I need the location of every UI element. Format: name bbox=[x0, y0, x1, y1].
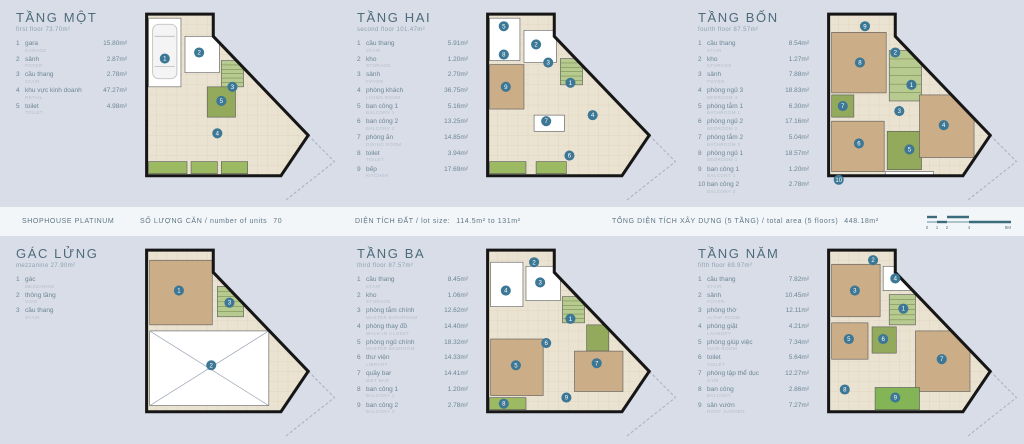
item-name: cầu thang bbox=[707, 40, 789, 47]
item-number: 3 bbox=[698, 71, 707, 78]
floor-title: TẦNG NĂM bbox=[698, 246, 809, 261]
item-number: 1 bbox=[357, 276, 366, 283]
item-name: sảnh bbox=[707, 292, 785, 299]
floor-title: TẦNG MỘT bbox=[16, 10, 127, 25]
room-marker: 5 bbox=[499, 21, 509, 31]
legend-item: 9sân vườn7.27m²ROOF GARDEN bbox=[698, 402, 809, 415]
item-name: kho bbox=[366, 292, 448, 299]
item-area: 14.33m² bbox=[444, 354, 468, 361]
room-marker: 9 bbox=[860, 21, 870, 31]
item-number: 1 bbox=[16, 40, 25, 47]
item-sublabel: MASTER BATHROOM bbox=[366, 315, 468, 320]
item-sublabel: BEDROOM 2 bbox=[707, 126, 809, 131]
room-marker: 2 bbox=[531, 39, 541, 49]
item-number: 2 bbox=[16, 292, 25, 299]
item-area: 18.32m² bbox=[444, 339, 468, 346]
item-name: phòng ăn bbox=[366, 134, 444, 141]
legend-item: 3cầu thang2.78m²STAIR bbox=[16, 71, 127, 84]
legend-item: 2kho1.06m²STORAGE bbox=[357, 292, 468, 305]
item-number: 2 bbox=[357, 56, 366, 63]
item-name: ban công bbox=[707, 386, 789, 393]
item-name: phòng tập thể dục bbox=[707, 370, 785, 377]
room-marker: 6 bbox=[541, 338, 551, 348]
item-area: 15.80m² bbox=[103, 40, 127, 47]
item-sublabel: BALCONY bbox=[707, 393, 809, 398]
item-number: 9 bbox=[357, 166, 366, 173]
item-name: ban công 2 bbox=[366, 402, 448, 409]
legend-item: 3cầu thangSTAIR bbox=[16, 307, 127, 320]
item-name: phòng khách bbox=[366, 87, 444, 94]
item-sublabel: RETAIL bbox=[25, 95, 127, 100]
item-area: 2.78m² bbox=[789, 181, 809, 188]
info-band: SHOPHOUSE PLATINUM SỐ LƯỢNG CĂN / number… bbox=[0, 207, 1024, 236]
item-area: 2.78m² bbox=[448, 402, 468, 409]
item-name: toilet bbox=[25, 103, 107, 110]
legend-item: 5phòng giúp việc7.34m²MAID ROOM bbox=[698, 339, 809, 352]
floor-legend: TẦNG NĂM fifth floor 69.97m² 1cầu thang7… bbox=[682, 238, 813, 443]
item-number: 2 bbox=[698, 56, 707, 63]
legend-item: 2thông tầngVOID bbox=[16, 292, 127, 305]
legend-item: 8ban công2.86m²BALCONY bbox=[698, 386, 809, 399]
floors-row-bottom: GÁC LỬNG mezzanine 27.90m² 1gácMEZZANINE… bbox=[0, 238, 1024, 443]
room-marker: 1 bbox=[898, 304, 908, 314]
room-marker: 1 bbox=[160, 54, 170, 64]
item-sublabel: GYM bbox=[707, 378, 809, 383]
legend-item: 8toilet3.94m²TOILET bbox=[357, 150, 468, 163]
legend-item: 7quầy bar14.41m²WET BAR bbox=[357, 370, 468, 383]
item-sublabel: BALCONY 2 bbox=[366, 126, 468, 131]
legend-item: 1cầu thang5.91m²STAIR bbox=[357, 40, 468, 53]
item-area: 10.45m² bbox=[785, 292, 809, 299]
item-name: sảnh bbox=[25, 56, 107, 63]
item-sublabel: STAIR bbox=[366, 284, 468, 289]
floor-plan-gac-lung: 132 bbox=[131, 238, 341, 440]
floor-cell-tang-nam: TẦNG NĂM fifth floor 69.97m² 1cầu thang7… bbox=[682, 238, 1023, 443]
room-marker: 7 bbox=[937, 354, 947, 364]
floor-title: TẦNG HAI bbox=[357, 10, 468, 25]
total-label: TỔNG DIỆN TÍCH XÂY DỰNG (5 TẦNG) / total… bbox=[612, 218, 838, 225]
legend-items: 1gara15.80m²GARAGE2sảnh2.87m²FOYER3cầu t… bbox=[16, 40, 127, 115]
room-marker: 7 bbox=[592, 358, 602, 368]
item-number: 9 bbox=[698, 402, 707, 409]
item-area: 3.94m² bbox=[448, 150, 468, 157]
item-sublabel: BALCONY 1 bbox=[366, 393, 468, 398]
item-number: 2 bbox=[16, 56, 25, 63]
item-sublabel: ROOF GARDEN bbox=[707, 409, 809, 414]
item-sublabel: BALCONY 2 bbox=[707, 189, 809, 194]
item-area: 7.82m² bbox=[789, 276, 809, 283]
scale-label: 4 bbox=[968, 225, 971, 230]
item-name: khu vực kinh doanh bbox=[25, 87, 103, 94]
legend-item: 5phòng tắm 16.30m²BATHROOM 1 bbox=[698, 103, 809, 116]
room-marker: 6 bbox=[878, 334, 888, 344]
room-marker: 4 bbox=[890, 273, 900, 283]
room-marker: 5 bbox=[904, 144, 914, 154]
scale-bar: 01248M bbox=[926, 213, 1012, 231]
room-marker: 4 bbox=[212, 128, 222, 138]
item-number: 7 bbox=[357, 370, 366, 377]
item-number: 7 bbox=[357, 134, 366, 141]
legend-items: 1cầu thang8.54m²STAIR2kho1.27m²STORAGE3s… bbox=[698, 40, 809, 194]
floor-plan-tang-ba: 234167589 bbox=[472, 238, 682, 440]
item-sublabel: TOILET bbox=[25, 110, 127, 115]
room-marker: 10 bbox=[834, 175, 844, 185]
legend-item: 5ban công 15.16m²BALCONY 1 bbox=[357, 103, 468, 116]
item-name: ban công 2 bbox=[366, 118, 444, 125]
item-sublabel: FOYER bbox=[25, 63, 127, 68]
floor-cell-tang-hai: TẦNG HAI second floor 101.47m² 1cầu than… bbox=[341, 2, 682, 207]
legend-item: 1cầu thang7.82m²STAIR bbox=[698, 276, 809, 289]
floors-row-top: TẦNG MỘT first floor 73.70m² 1gara15.80m… bbox=[0, 2, 1024, 207]
item-number: 4 bbox=[698, 87, 707, 94]
room-marker: 3 bbox=[850, 285, 860, 295]
item-name: sảnh bbox=[707, 71, 789, 78]
item-area: 7.34m² bbox=[789, 339, 809, 346]
item-sublabel: BALCONY 2 bbox=[366, 409, 468, 414]
floor-legend: GÁC LỬNG mezzanine 27.90m² 1gácMEZZANINE… bbox=[0, 238, 131, 443]
item-sublabel: STORAGE bbox=[366, 63, 468, 68]
item-name: cầu thang bbox=[366, 276, 448, 283]
item-name: bếp bbox=[366, 166, 444, 173]
item-name: gác bbox=[25, 276, 127, 283]
item-sublabel: MAID ROOM bbox=[707, 346, 809, 351]
scale-label: 0 bbox=[926, 225, 929, 230]
legend-item: 1cầu thang8.54m²STAIR bbox=[698, 40, 809, 53]
plan-room bbox=[536, 162, 566, 174]
item-number: 1 bbox=[357, 40, 366, 47]
item-name: toilet bbox=[707, 354, 789, 361]
floor-subtitle: fourth floor 87.57m² bbox=[698, 27, 809, 33]
item-number: 4 bbox=[698, 323, 707, 330]
item-sublabel: WET BAR bbox=[366, 378, 468, 383]
item-name: cầu thang bbox=[707, 276, 789, 283]
item-area: 12.27m² bbox=[785, 370, 809, 377]
room-marker: 3 bbox=[894, 106, 904, 116]
legend-item: 4phòng ngủ 318.83m²BEDROOM 3 bbox=[698, 87, 809, 100]
legend-items: 1cầu thang8.45m²STAIR2kho1.06m²STORAGE3p… bbox=[357, 276, 468, 414]
item-sublabel: STAIR bbox=[366, 48, 468, 53]
item-sublabel: BALCONY 1 bbox=[366, 110, 468, 115]
item-number: 7 bbox=[698, 370, 707, 377]
item-number: 6 bbox=[357, 118, 366, 125]
svg-text:10: 10 bbox=[835, 178, 842, 184]
room-marker: 4 bbox=[939, 120, 949, 130]
legend-item: 6phòng ngủ 217.16m²BEDROOM 2 bbox=[698, 118, 809, 131]
item-number: 5 bbox=[357, 339, 366, 346]
floor-plan-tang-bon: 92817346510 bbox=[813, 2, 1023, 204]
legend-item: 1cầu thang8.45m²STAIR bbox=[357, 276, 468, 289]
item-sublabel: TOILET bbox=[366, 157, 468, 162]
item-area: 8.54m² bbox=[789, 40, 809, 47]
item-name: cầu thang bbox=[25, 307, 127, 314]
item-area: 4.21m² bbox=[789, 323, 809, 330]
plan-room bbox=[490, 162, 526, 174]
plan-room bbox=[587, 325, 609, 351]
brand-label: SHOPHOUSE PLATINUM bbox=[22, 207, 114, 236]
item-number: 5 bbox=[357, 103, 366, 110]
item-name: ban công 1 bbox=[707, 166, 789, 173]
item-name: phòng ngủ 3 bbox=[707, 87, 785, 94]
item-sublabel: BATHROOM 1 bbox=[707, 110, 809, 115]
legend-item: 9bếp17.69m²KITCHEN bbox=[357, 166, 468, 179]
item-sublabel: STAIR bbox=[707, 284, 809, 289]
item-area: 14.85m² bbox=[444, 134, 468, 141]
room-marker: 9 bbox=[890, 393, 900, 403]
legend-items: 1gácMEZZANINE2thông tầngVOID3cầu thangST… bbox=[16, 276, 127, 320]
item-area: 13.25m² bbox=[444, 118, 468, 125]
room-marker: 1 bbox=[565, 314, 575, 324]
floor-legend: TẦNG HAI second floor 101.47m² 1cầu than… bbox=[341, 2, 472, 207]
item-sublabel: STAIR bbox=[25, 315, 127, 320]
item-area: 1.20m² bbox=[789, 166, 809, 173]
floor-subtitle: third floor 87.57m² bbox=[357, 263, 468, 269]
plan-room bbox=[887, 131, 921, 169]
item-number: 3 bbox=[16, 71, 25, 78]
item-number: 7 bbox=[698, 134, 707, 141]
legend-item: 9ban công 22.78m²BALCONY 2 bbox=[357, 402, 468, 415]
item-sublabel: TOILET bbox=[707, 362, 809, 367]
item-name: phòng tắm chính bbox=[366, 307, 444, 314]
floor-subtitle: first floor 73.70m² bbox=[16, 27, 127, 33]
legend-item: 3sảnh7.88m²FOYER bbox=[698, 71, 809, 84]
item-sublabel: GARAGE bbox=[25, 48, 127, 53]
item-number: 4 bbox=[357, 87, 366, 94]
item-number: 8 bbox=[698, 386, 707, 393]
item-name: phòng ngủ 1 bbox=[707, 150, 785, 157]
item-number: 6 bbox=[698, 118, 707, 125]
item-number: 8 bbox=[357, 386, 366, 393]
item-number: 3 bbox=[698, 307, 707, 314]
legend-item: 6thư viện14.33m²LIBRARY bbox=[357, 354, 468, 367]
room-marker: 1 bbox=[906, 80, 916, 90]
item-area: 1.06m² bbox=[448, 292, 468, 299]
item-area: 2.87m² bbox=[107, 56, 127, 63]
item-number: 1 bbox=[698, 40, 707, 47]
item-area: 8.45m² bbox=[448, 276, 468, 283]
legend-item: 5toilet4.98m²TOILET bbox=[16, 103, 127, 116]
item-number: 5 bbox=[698, 103, 707, 110]
total-value: 448.18m² bbox=[844, 218, 878, 225]
item-name: quầy bar bbox=[366, 370, 444, 377]
room-marker: 6 bbox=[564, 150, 574, 160]
room-marker: 8 bbox=[840, 384, 850, 394]
item-area: 12.62m² bbox=[444, 307, 468, 314]
item-area: 2.78m² bbox=[107, 71, 127, 78]
item-sublabel: STAIR bbox=[707, 48, 809, 53]
item-number: 8 bbox=[357, 150, 366, 157]
item-number: 9 bbox=[357, 402, 366, 409]
item-name: phòng ngủ chính bbox=[366, 339, 444, 346]
item-area: 12.11m² bbox=[786, 307, 809, 314]
floor-cell-gac-lung: GÁC LỬNG mezzanine 27.90m² 1gácMEZZANINE… bbox=[0, 238, 341, 443]
legend-item: 3phòng thờ12.11m²ALTAR ROOM bbox=[698, 307, 809, 320]
item-area: 5.04m² bbox=[789, 134, 809, 141]
plan-room bbox=[149, 162, 187, 174]
item-sublabel: ALTAR ROOM bbox=[707, 315, 809, 320]
item-sublabel: BEDROOM 1 bbox=[707, 157, 809, 162]
floor-plan-tang-mot: 12354 bbox=[131, 2, 341, 204]
legend-item: 3sảnh2.70m²FOYER bbox=[357, 71, 468, 84]
floor-legend: TẦNG BỐN fourth floor 87.57m² 1cầu thang… bbox=[682, 2, 813, 207]
legend-item: 2kho1.27m²STORAGE bbox=[698, 56, 809, 69]
legend-item: 7phòng tắm 25.04m²BATHROOM 2 bbox=[698, 134, 809, 147]
legend-item: 5phòng ngủ chính18.32m²MASTER BEDROOM bbox=[357, 339, 468, 352]
floor-cell-tang-bon: TẦNG BỐN fourth floor 87.57m² 1cầu thang… bbox=[682, 2, 1023, 207]
plan-room bbox=[191, 162, 217, 174]
item-number: 5 bbox=[698, 339, 707, 346]
floor-title: TẦNG BA bbox=[357, 246, 468, 261]
item-number: 3 bbox=[357, 307, 366, 314]
item-area: 36.75m² bbox=[444, 87, 468, 94]
item-area: 7.27m² bbox=[789, 402, 809, 409]
legend-item: 4khu vực kinh doanh47.27m²RETAIL bbox=[16, 87, 127, 100]
item-area: 1.20m² bbox=[448, 386, 468, 393]
room-marker: 2 bbox=[194, 47, 204, 57]
item-sublabel: DINING ROOM bbox=[366, 142, 468, 147]
room-marker: 1 bbox=[174, 285, 184, 295]
plan-room bbox=[574, 351, 622, 391]
item-name: cầu thang bbox=[366, 40, 448, 47]
legend-item: 8ban công 11.20m²BALCONY 1 bbox=[357, 386, 468, 399]
legend-item: 6ban công 213.25m²BALCONY 2 bbox=[357, 118, 468, 131]
item-sublabel: LIVING ROOM bbox=[366, 95, 468, 100]
item-name: sảnh bbox=[366, 71, 448, 78]
floor-subtitle: mezzanine 27.90m² bbox=[16, 263, 127, 269]
room-marker: 2 bbox=[529, 257, 539, 267]
legend-item: 7phòng ăn14.85m²DINING ROOM bbox=[357, 134, 468, 147]
room-marker: 3 bbox=[543, 58, 553, 68]
item-area: 6.30m² bbox=[789, 103, 809, 110]
item-name: ban công 1 bbox=[366, 103, 448, 110]
room-marker: 8 bbox=[499, 49, 509, 59]
item-number: 4 bbox=[357, 323, 366, 330]
room-marker: 3 bbox=[224, 298, 234, 308]
room-marker: 1 bbox=[565, 78, 575, 88]
item-sublabel: VOID bbox=[25, 299, 127, 304]
lot-size-info: DIỆN TÍCH ĐẤT / lot size: 114.5m² to 131… bbox=[355, 207, 521, 236]
legend-item: 9ban công 11.20m²BALCONY 1 bbox=[698, 166, 809, 179]
item-area: 4.98m² bbox=[107, 103, 127, 110]
room-marker: 2 bbox=[868, 255, 878, 265]
item-name: phòng tắm 2 bbox=[707, 134, 789, 141]
plan-room bbox=[221, 162, 247, 174]
item-sublabel: STAIR bbox=[25, 79, 127, 84]
item-number: 2 bbox=[698, 292, 707, 299]
legend-item: 6toilet5.64m²TOILET bbox=[698, 354, 809, 367]
item-area: 1.20m² bbox=[448, 56, 468, 63]
room-marker: 7 bbox=[838, 101, 848, 111]
item-area: 5.91m² bbox=[448, 40, 468, 47]
item-name: thông tầng bbox=[25, 292, 127, 299]
item-area: 5.64m² bbox=[789, 354, 809, 361]
item-number: 6 bbox=[698, 354, 707, 361]
item-sublabel: FOYER bbox=[707, 79, 809, 84]
item-sublabel: MASTER BEDROOM bbox=[366, 346, 468, 351]
item-number: 1 bbox=[698, 276, 707, 283]
lot-label: DIỆN TÍCH ĐẤT / lot size: bbox=[355, 218, 450, 225]
item-number: 6 bbox=[357, 354, 366, 361]
item-sublabel: MEZZANINE bbox=[25, 284, 127, 289]
item-name: phòng thờ bbox=[707, 307, 786, 314]
scale-label: 2 bbox=[946, 225, 949, 230]
item-name: phòng ngủ 2 bbox=[707, 118, 785, 125]
room-marker: 3 bbox=[227, 82, 237, 92]
legend-item: 3phòng tắm chính12.62m²MASTER BATHROOM bbox=[357, 307, 468, 320]
room-marker: 4 bbox=[588, 110, 598, 120]
floor-legend: TẦNG MỘT first floor 73.70m² 1gara15.80m… bbox=[0, 2, 131, 207]
item-number: 3 bbox=[357, 71, 366, 78]
units-label: SỐ LƯỢNG CĂN / number of units bbox=[140, 218, 267, 225]
floor-cell-tang-mot: TẦNG MỘT first floor 73.70m² 1gara15.80m… bbox=[0, 2, 341, 207]
item-sublabel: FOYER bbox=[707, 299, 809, 304]
item-area: 18.83m² bbox=[785, 87, 809, 94]
room-marker: 8 bbox=[499, 399, 509, 409]
item-area: 7.88m² bbox=[789, 71, 809, 78]
item-sublabel: BALCONY 1 bbox=[707, 173, 809, 178]
item-number: 1 bbox=[16, 276, 25, 283]
units-value: 70 bbox=[273, 218, 282, 225]
item-name: phòng tắm 1 bbox=[707, 103, 789, 110]
scale-label: 1 bbox=[936, 225, 939, 230]
item-name: thư viện bbox=[366, 354, 444, 361]
item-sublabel: STORAGE bbox=[366, 299, 468, 304]
room-marker: 6 bbox=[854, 138, 864, 148]
item-area: 2.86m² bbox=[789, 386, 809, 393]
item-sublabel: KITCHEN bbox=[366, 173, 468, 178]
item-area: 17.16m² bbox=[785, 118, 809, 125]
legend-item: 8phòng ngủ 118.57m²BEDROOM 1 bbox=[698, 150, 809, 163]
legend-item: 2sảnh2.87m²FOYER bbox=[16, 56, 127, 69]
item-name: kho bbox=[366, 56, 448, 63]
floor-title: TẦNG BỐN bbox=[698, 10, 809, 25]
room-marker: 2 bbox=[206, 360, 216, 370]
legend-item: 10ban công 22.78m²BALCONY 2 bbox=[698, 181, 809, 194]
floor-cell-tang-ba: TẦNG BA third floor 87.57m² 1cầu thang8.… bbox=[341, 238, 682, 443]
item-area: 5.16m² bbox=[448, 103, 468, 110]
floor-subtitle: fifth floor 69.97m² bbox=[698, 263, 809, 269]
room-marker: 5 bbox=[511, 360, 521, 370]
legend-items: 1cầu thang7.82m²STAIR2sảnh10.45m²FOYER3p… bbox=[698, 276, 809, 414]
room-marker: 5 bbox=[844, 334, 854, 344]
item-sublabel: FOYER bbox=[366, 79, 468, 84]
item-name: ban công 1 bbox=[366, 386, 448, 393]
floor-plan-tang-hai: 523189746 bbox=[472, 2, 682, 204]
floor-title: GÁC LỬNG bbox=[16, 246, 127, 261]
item-name: phòng giặt bbox=[707, 323, 789, 330]
item-sublabel: BEDROOM 3 bbox=[707, 95, 809, 100]
room-marker: 7 bbox=[541, 116, 551, 126]
room-marker: 9 bbox=[561, 393, 571, 403]
floor-subtitle: second floor 101.47m² bbox=[357, 27, 468, 33]
item-area: 18.57m² bbox=[785, 150, 809, 157]
legend-item: 2kho1.20m²STORAGE bbox=[357, 56, 468, 69]
item-sublabel: LAUNDRY bbox=[707, 331, 809, 336]
item-sublabel: BATHROOM 2 bbox=[707, 142, 809, 147]
units-info: SỐ LƯỢNG CĂN / number of units 70 bbox=[140, 207, 282, 236]
item-area: 47.27m² bbox=[103, 87, 127, 94]
item-name: phòng thay đồ bbox=[366, 323, 444, 330]
legend-item: 2sảnh10.45m²FOYER bbox=[698, 292, 809, 305]
room-marker: 9 bbox=[501, 82, 511, 92]
legend-item: 1gácMEZZANINE bbox=[16, 276, 127, 289]
legend-item: 4phòng thay đồ14.40m²WALK-IN CLOSET bbox=[357, 323, 468, 336]
item-number: 2 bbox=[357, 292, 366, 299]
floor-plan-tang-nam: 341256789 bbox=[813, 238, 1023, 440]
room-marker: 5 bbox=[216, 96, 226, 106]
item-area: 17.69m² bbox=[444, 166, 468, 173]
item-name: cầu thang bbox=[25, 71, 107, 78]
item-name: gara bbox=[25, 40, 103, 47]
